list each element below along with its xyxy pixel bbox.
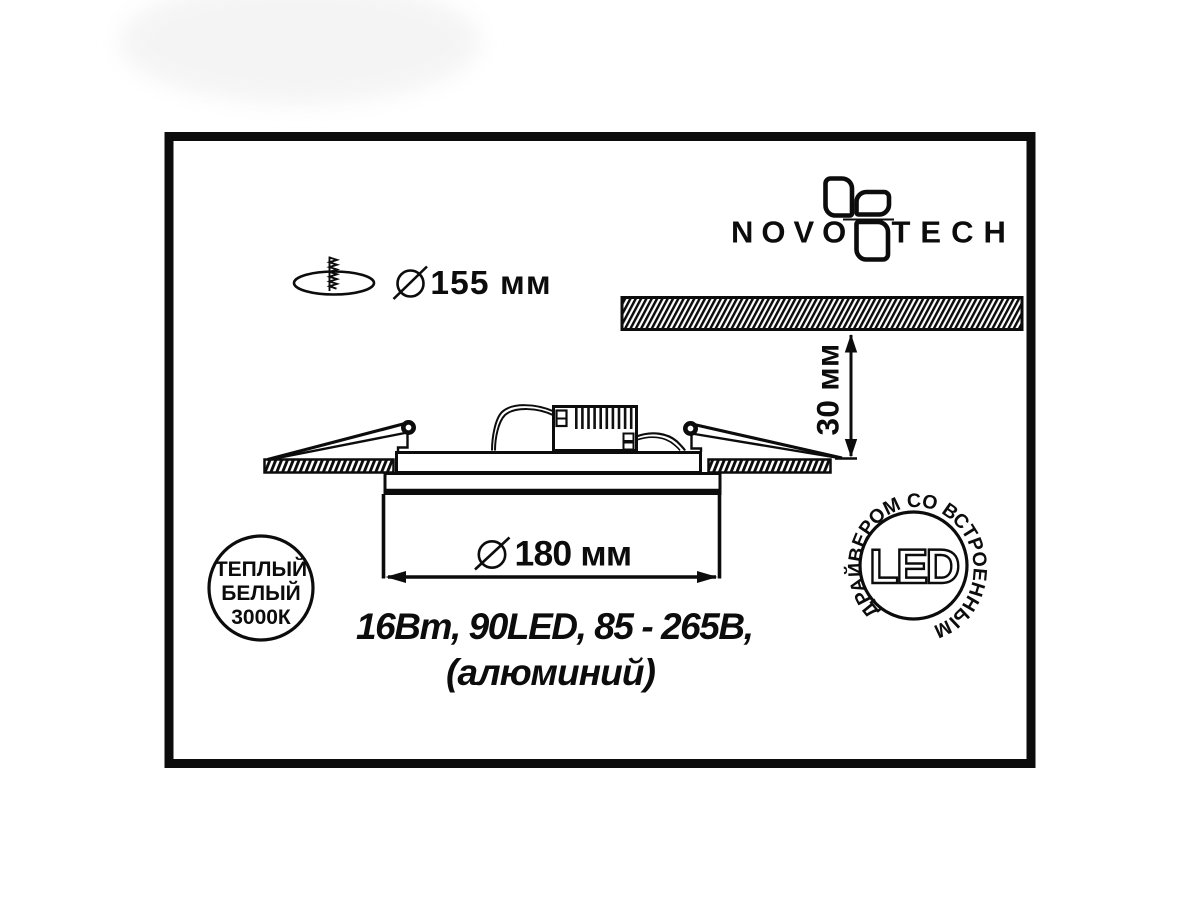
svg-text:TECH: TECH <box>892 215 1016 250</box>
svg-text:LED: LED <box>869 541 958 594</box>
svg-text:180 мм: 180 мм <box>515 534 632 574</box>
svg-text:ТЕПЛЫЙ: ТЕПЛЫЙ <box>215 557 307 581</box>
svg-text:16Вm, 90LED, 85 - 265В,: 16Вm, 90LED, 85 - 265В, <box>356 606 754 647</box>
svg-text:3000К: 3000К <box>231 606 291 629</box>
svg-text:NOVO: NOVO <box>731 215 854 250</box>
svg-text:БЕЛЫЙ: БЕЛЫЙ <box>221 581 301 605</box>
svg-text:30 мм: 30 мм <box>810 344 846 436</box>
svg-text:155 мм: 155 мм <box>430 265 551 302</box>
svg-text:(алюмuнuй): (алюмuнuй) <box>446 652 656 693</box>
